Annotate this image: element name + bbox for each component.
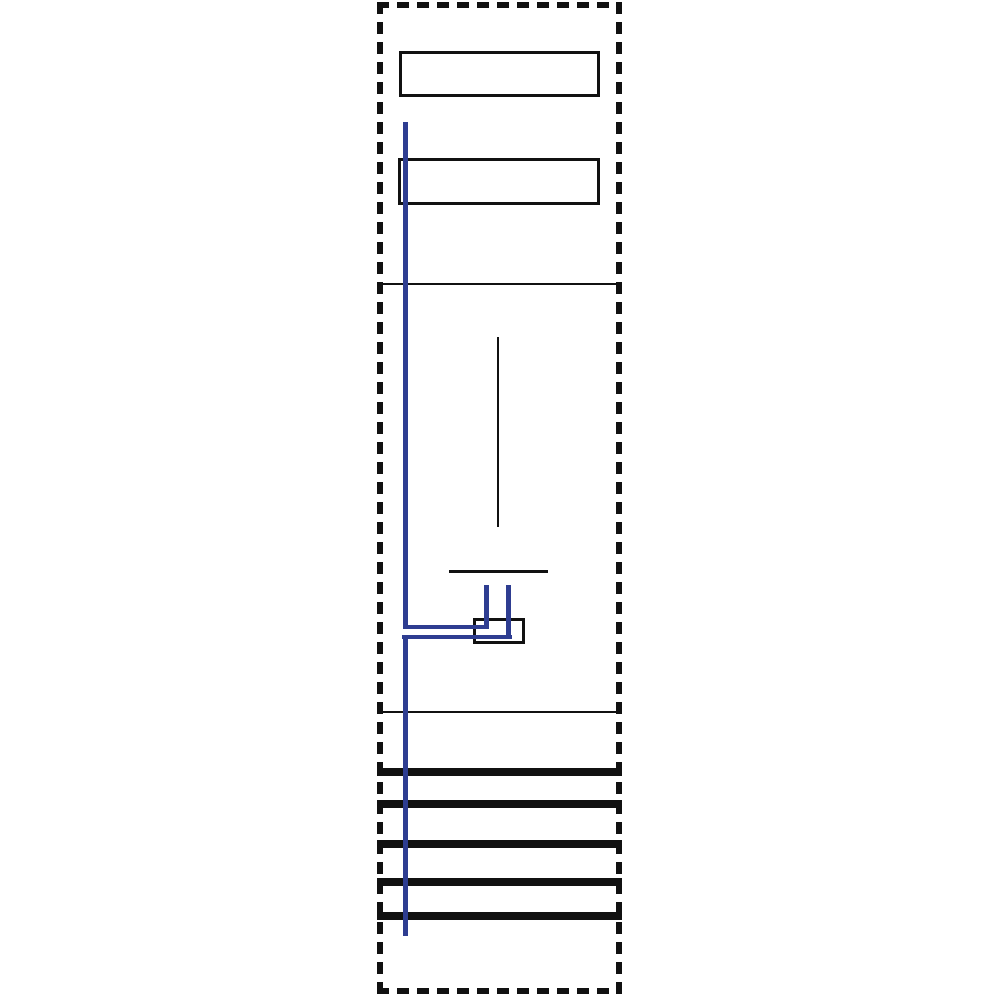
- panel-outline-top: [377, 2, 622, 8]
- panel-outline-bottom: [377, 988, 622, 994]
- section-divider-bottom: [377, 711, 621, 713]
- busbar-3: [377, 840, 622, 848]
- phase-wire-bus-upper: [403, 122, 408, 629]
- phase-wire-branch-upper: [404, 625, 489, 629]
- busbar-2: [377, 800, 622, 808]
- meter-panel-diagram: [0, 0, 1000, 1000]
- meter-marker-line: [497, 337, 499, 527]
- phase-wire-bus-lower: [403, 635, 408, 936]
- busbar-1: [377, 768, 622, 776]
- busbar-4: [377, 878, 622, 886]
- cover-plate-top: [399, 51, 600, 97]
- phase-wire-stub-right: [506, 585, 511, 639]
- cover-plate-upper: [398, 158, 600, 205]
- section-divider-top: [377, 283, 620, 285]
- meter-terminal-line: [449, 570, 548, 573]
- busbar-5: [377, 912, 622, 920]
- terminal-box: [473, 618, 525, 644]
- phase-wire-stub-left: [484, 585, 489, 629]
- phase-wire-branch-lower: [402, 635, 512, 639]
